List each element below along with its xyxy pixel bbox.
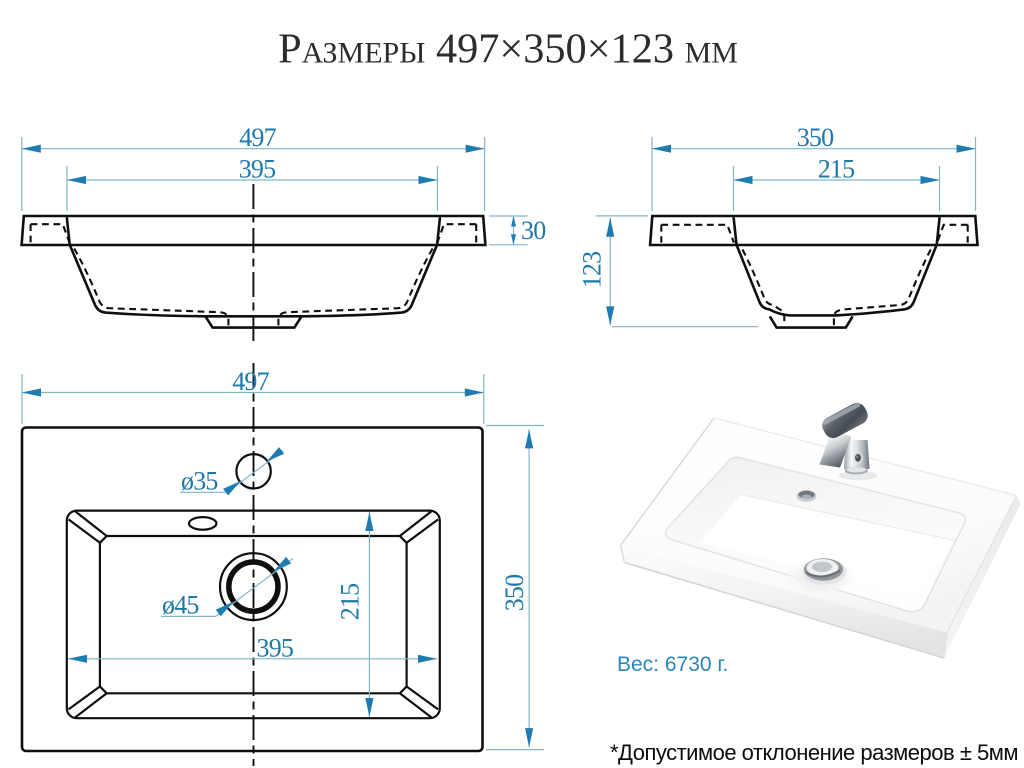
svg-text:Размеры 497×350×123 мм: Размеры 497×350×123 мм (278, 25, 738, 72)
svg-text:497: 497 (239, 123, 276, 152)
svg-text:497: 497 (232, 367, 269, 396)
svg-text:395: 395 (239, 154, 276, 183)
svg-text:123: 123 (578, 252, 607, 289)
svg-text:ø45: ø45 (162, 591, 199, 620)
svg-text:30: 30 (521, 216, 546, 245)
svg-text:350: 350 (500, 574, 529, 611)
svg-text:395: 395 (257, 633, 294, 662)
svg-text:Вес: 6730 г.: Вес: 6730 г. (617, 653, 728, 676)
svg-text:215: 215 (818, 154, 855, 183)
svg-text:*Допустимое отклонение размеро: *Допустимое отклонение размеров ± 5мм (610, 740, 1018, 765)
svg-text:350: 350 (797, 123, 834, 152)
svg-text:ø35: ø35 (181, 467, 218, 496)
svg-text:215: 215 (336, 584, 365, 621)
